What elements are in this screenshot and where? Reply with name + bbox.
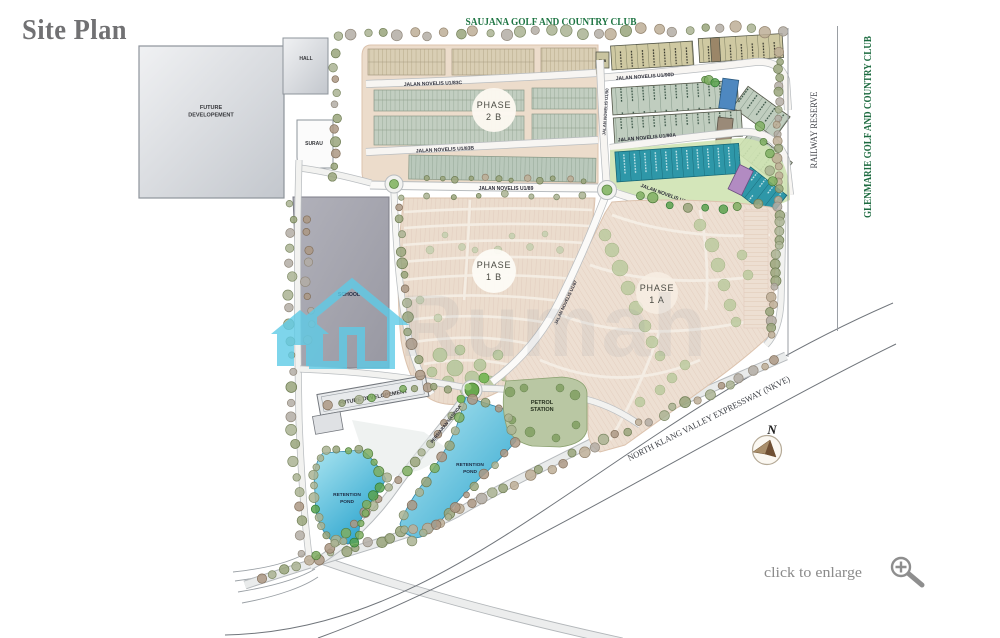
svg-text:click to enlarge: click to enlarge: [764, 565, 862, 581]
svg-text:RETENTION: RETENTION: [456, 462, 484, 468]
svg-text:HALL: HALL: [299, 56, 312, 62]
svg-text:RAILWAY RESERVE: RAILWAY RESERVE: [810, 91, 820, 168]
svg-text:PHASE: PHASE: [477, 100, 512, 110]
svg-text:GLENMARIE GOLF AND COUNTRY CLU: GLENMARIE GOLF AND COUNTRY CLUB: [863, 36, 874, 218]
svg-text:Rumah: Rumah: [400, 276, 708, 375]
svg-text:2 B: 2 B: [486, 112, 502, 122]
svg-text:POND: POND: [340, 499, 354, 505]
svg-text:DEVELOPEMENT: DEVELOPEMENT: [188, 113, 234, 119]
svg-text:SURAU: SURAU: [305, 141, 323, 147]
svg-text:FUTURE: FUTURE: [200, 105, 223, 111]
svg-text:Site Plan: Site Plan: [22, 14, 127, 46]
svg-text:RETENTION: RETENTION: [333, 492, 361, 498]
svg-text:POND: POND: [463, 469, 477, 475]
svg-text:STATION: STATION: [530, 407, 553, 413]
svg-text:N: N: [766, 422, 777, 437]
svg-text:PETROL: PETROL: [531, 400, 554, 406]
svg-text:PHASE: PHASE: [477, 260, 512, 270]
